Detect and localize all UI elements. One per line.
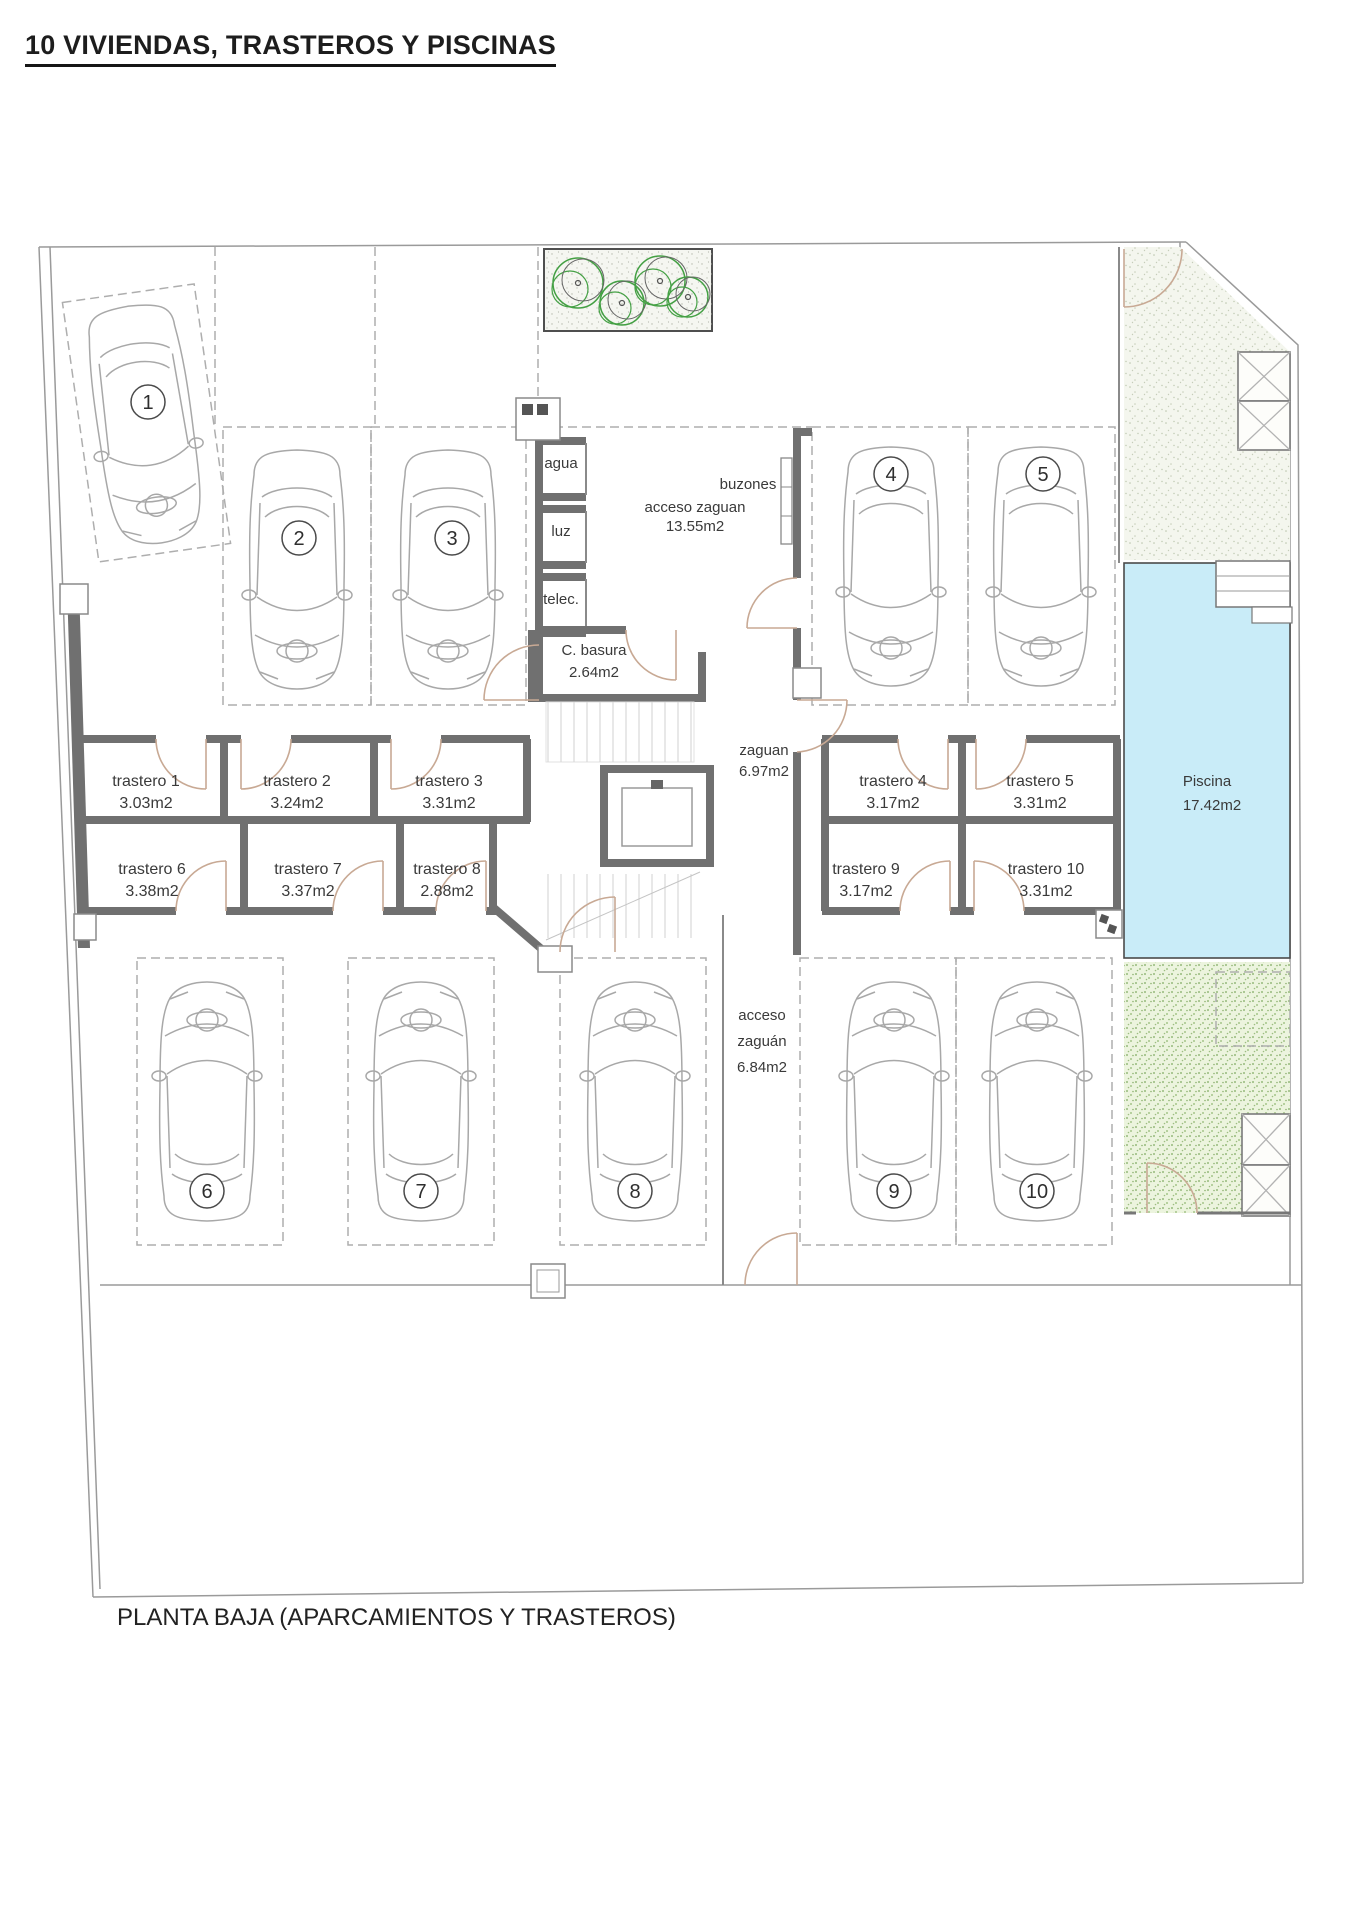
parking-number-9: 9 <box>877 1174 911 1208</box>
acceso-zaguan-sur-area: 6.84m2 <box>737 1059 787 1076</box>
column <box>531 1264 565 1298</box>
telec-label: telec. <box>543 591 579 608</box>
buzones-label: buzones <box>720 476 777 493</box>
footing <box>74 914 96 940</box>
svg-text:3.37m2: 3.37m2 <box>281 883 334 900</box>
c-basura-label: C. basura <box>561 642 627 659</box>
mailboxes-icon <box>781 458 792 544</box>
trastero-9-label: trastero 93.17m2 <box>832 861 900 900</box>
shaft <box>1096 910 1122 938</box>
plan-caption: PLANTA BAJA (APARCAMIENTOS Y TRASTEROS) <box>117 1604 676 1632</box>
svg-text:3.17m2: 3.17m2 <box>839 883 892 900</box>
svg-text:3.31m2: 3.31m2 <box>422 795 475 812</box>
door-arc <box>900 861 950 911</box>
pool-area: 17.42m2 <box>1183 797 1241 814</box>
svg-text:trastero 7: trastero 7 <box>274 861 342 878</box>
svg-text:3.03m2: 3.03m2 <box>119 795 172 812</box>
trastero-10-label: trastero 103.31m2 <box>1008 861 1085 900</box>
trastero-2-label: trastero 23.24m2 <box>263 773 331 812</box>
left-wall <box>67 585 90 948</box>
floor-plan-drawing: Piscina 17.42m2 <box>0 0 1357 1920</box>
parking-bay-3 <box>371 427 526 705</box>
trastero-3-label: trastero 33.31m2 <box>415 773 483 812</box>
svg-text:3.24m2: 3.24m2 <box>270 795 323 812</box>
parking-bay-1 <box>62 284 230 562</box>
zaguan-area: 6.97m2 <box>739 763 789 780</box>
trastero-4-label: trastero 43.17m2 <box>859 773 927 812</box>
car-icon <box>393 450 503 689</box>
car-icon <box>74 299 216 551</box>
floor-plan-page: 10 VIVIENDAS, TRASTEROS Y PISCINAS <box>0 0 1357 1920</box>
svg-text:3.38m2: 3.38m2 <box>125 883 178 900</box>
c-basura-area: 2.64m2 <box>569 664 619 681</box>
pillar <box>793 668 821 698</box>
parking-number-3: 3 <box>435 521 469 555</box>
trastero-labels: trastero 13.03m2 trastero 23.24m2 traste… <box>112 773 1084 900</box>
svg-text:3: 3 <box>446 528 457 550</box>
svg-text:trastero 3: trastero 3 <box>415 773 483 790</box>
zaguan-label: zaguan <box>739 742 788 759</box>
svg-text:4: 4 <box>885 464 896 486</box>
door-arc <box>797 700 847 752</box>
agua-label: agua <box>544 455 578 472</box>
acceso-zaguan-sur-l2: zaguán <box>737 1033 786 1050</box>
svg-text:8: 8 <box>629 1181 640 1203</box>
svg-text:9: 9 <box>888 1181 899 1203</box>
trastero-7-label: trastero 73.37m2 <box>274 861 342 900</box>
svg-text:trastero 6: trastero 6 <box>118 861 186 878</box>
svg-text:1: 1 <box>142 392 153 414</box>
pool-label: Piscina <box>1183 773 1232 790</box>
acceso-zaguan-sur-l1: acceso <box>738 1007 786 1024</box>
svg-text:2.88m2: 2.88m2 <box>420 883 473 900</box>
parking-number-1: 1 <box>131 385 165 419</box>
svg-text:2: 2 <box>293 528 304 550</box>
parking-bay-2 <box>223 427 371 705</box>
parking-number-4: 4 <box>874 457 908 491</box>
elevator-icon <box>604 769 710 863</box>
pool: Piscina 17.42m2 <box>1124 561 1292 958</box>
parking-number-10: 10 <box>1020 1174 1054 1208</box>
trastero-1-label: trastero 13.03m2 <box>112 773 180 812</box>
parking-number-5: 5 <box>1026 457 1060 491</box>
svg-text:10: 10 <box>1026 1181 1048 1203</box>
car-icon <box>242 450 352 689</box>
svg-text:trastero 9: trastero 9 <box>832 861 900 878</box>
parking-number-7: 7 <box>404 1174 438 1208</box>
luz-label: luz <box>551 523 570 540</box>
door-arc <box>745 1233 797 1285</box>
column <box>538 946 572 972</box>
parking-number-6: 6 <box>190 1174 224 1208</box>
svg-text:7: 7 <box>415 1181 426 1203</box>
parking-number-8: 8 <box>618 1174 652 1208</box>
svg-text:trastero 1: trastero 1 <box>112 773 180 790</box>
svg-text:3.31m2: 3.31m2 <box>1019 883 1072 900</box>
svg-text:5: 5 <box>1037 464 1048 486</box>
svg-text:trastero 4: trastero 4 <box>859 773 927 790</box>
planter <box>544 249 712 331</box>
acceso-zaguan-label: acceso zaguan <box>645 499 746 516</box>
door-arc <box>747 578 797 628</box>
svg-text:6: 6 <box>201 1181 212 1203</box>
svg-text:trastero 5: trastero 5 <box>1006 773 1074 790</box>
svg-text:trastero 8: trastero 8 <box>413 861 481 878</box>
parking-number-2: 2 <box>282 521 316 555</box>
trastero-6-label: trastero 63.38m2 <box>118 861 186 900</box>
svg-text:3.31m2: 3.31m2 <box>1013 795 1066 812</box>
svg-text:trastero 10: trastero 10 <box>1008 861 1085 878</box>
acceso-zaguan-area: 13.55m2 <box>666 518 724 535</box>
svg-text:trastero 2: trastero 2 <box>263 773 331 790</box>
trastero-5-label: trastero 53.31m2 <box>1006 773 1074 812</box>
svg-text:3.17m2: 3.17m2 <box>866 795 919 812</box>
footing <box>60 584 88 614</box>
door-arc <box>626 630 676 680</box>
